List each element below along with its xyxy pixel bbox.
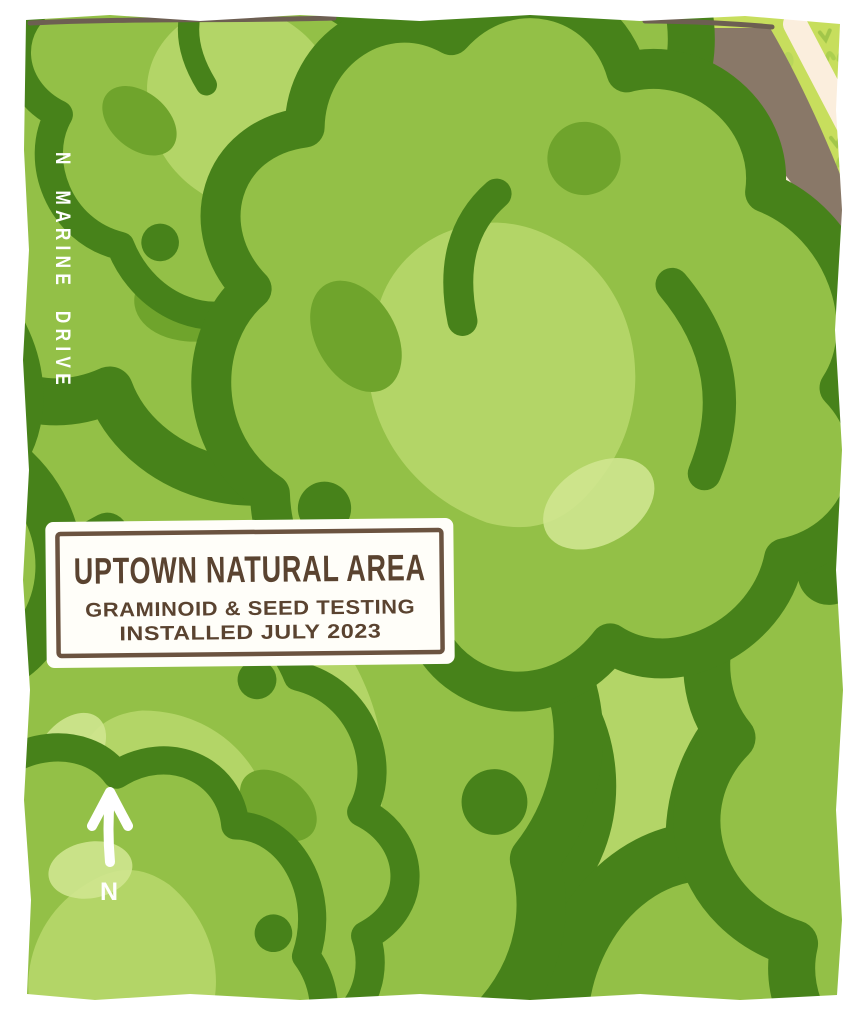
legend-subtitle: GRAMINOID & SEED TESTING [85, 596, 415, 621]
legend-installed-date: INSTALLED JULY 2023 [119, 621, 381, 646]
legend-box: UPTOWN NATURAL AREA GRAMINOID & SEED TES… [45, 518, 455, 668]
map-page: CXPENCXRADSPOHETCXMOLSCHSCOCXMEACXALBCXP… [0, 0, 862, 1024]
park-map: CXPENCXRADSPOHETCXMOLSCHSCOCXMEACXALBCXP… [0, 0, 862, 1024]
north-label: N [100, 878, 118, 906]
legend-title: UPTOWN NATURAL AREA [74, 547, 426, 592]
street-name-label: N MARINE DRIVE [51, 152, 74, 390]
